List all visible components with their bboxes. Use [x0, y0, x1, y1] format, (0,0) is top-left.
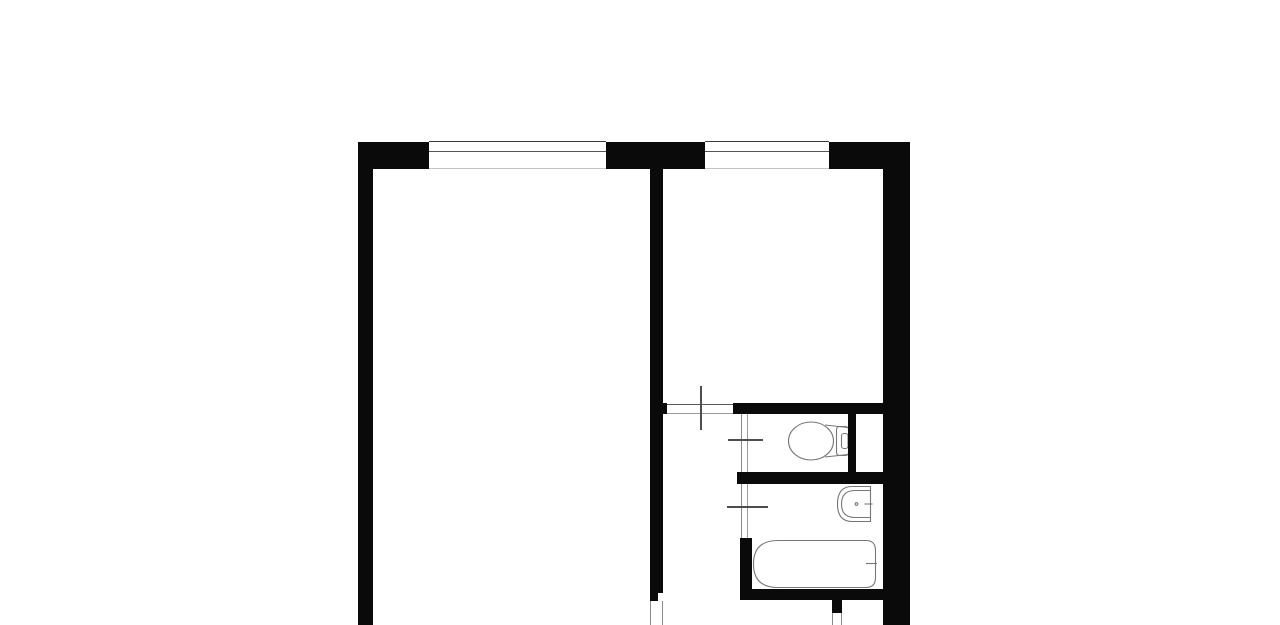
wc-door-jamb-inner	[747, 414, 748, 472]
bathroom-left-wall	[740, 538, 752, 589]
wc-right-wall	[848, 414, 856, 472]
entry-door-jamb-right	[841, 613, 842, 625]
bath-door-leaf	[727, 506, 768, 508]
room-door-leaf	[700, 386, 702, 430]
left-exterior-wall	[358, 169, 373, 625]
hall-bottom-door-jamb-right	[662, 601, 663, 625]
entry-door-jamb-left	[832, 613, 833, 625]
window-2-glazing-line	[705, 151, 829, 153]
toilet-outline-bottom	[825, 455, 848, 458]
toilet-cistern	[837, 427, 849, 456]
fixtures-layer	[0, 0, 1280, 625]
sink-outline	[838, 487, 871, 522]
window-2-inner-line	[705, 168, 829, 169]
sink-drain-dot	[855, 503, 858, 506]
toilet-bowl	[789, 422, 834, 460]
window-2-outer-line	[705, 141, 829, 142]
top-wall-right-segment	[829, 142, 910, 169]
sink-inner-line	[842, 491, 871, 518]
window-1-inner-line	[429, 168, 606, 169]
wc-top-wall	[733, 403, 883, 414]
bathroom-bottom-wall	[740, 589, 883, 600]
interior-wall-stub	[650, 593, 658, 601]
window-1-glazing-line	[429, 151, 606, 153]
wc-bottom-wall	[737, 472, 883, 484]
right-exterior-wall	[883, 169, 910, 625]
bath-door-jamb-inner	[747, 484, 748, 538]
top-wall-center-pier	[606, 142, 705, 169]
bathtub-outline	[754, 541, 876, 588]
hallway-wall-left-stub	[650, 403, 667, 414]
entry-wall-stub	[832, 600, 842, 613]
wc-door-jamb-outer	[741, 414, 742, 472]
top-wall-left-segment	[358, 142, 429, 169]
hall-bottom-door-jamb-left	[650, 601, 651, 625]
window-1-outer-line	[429, 141, 606, 142]
toilet-outline-top	[825, 425, 848, 428]
floor-plan	[0, 0, 1280, 625]
bath-door-jamb-outer	[741, 484, 742, 538]
interior-wall-vertical	[650, 169, 663, 593]
wc-door-leaf	[728, 439, 763, 441]
